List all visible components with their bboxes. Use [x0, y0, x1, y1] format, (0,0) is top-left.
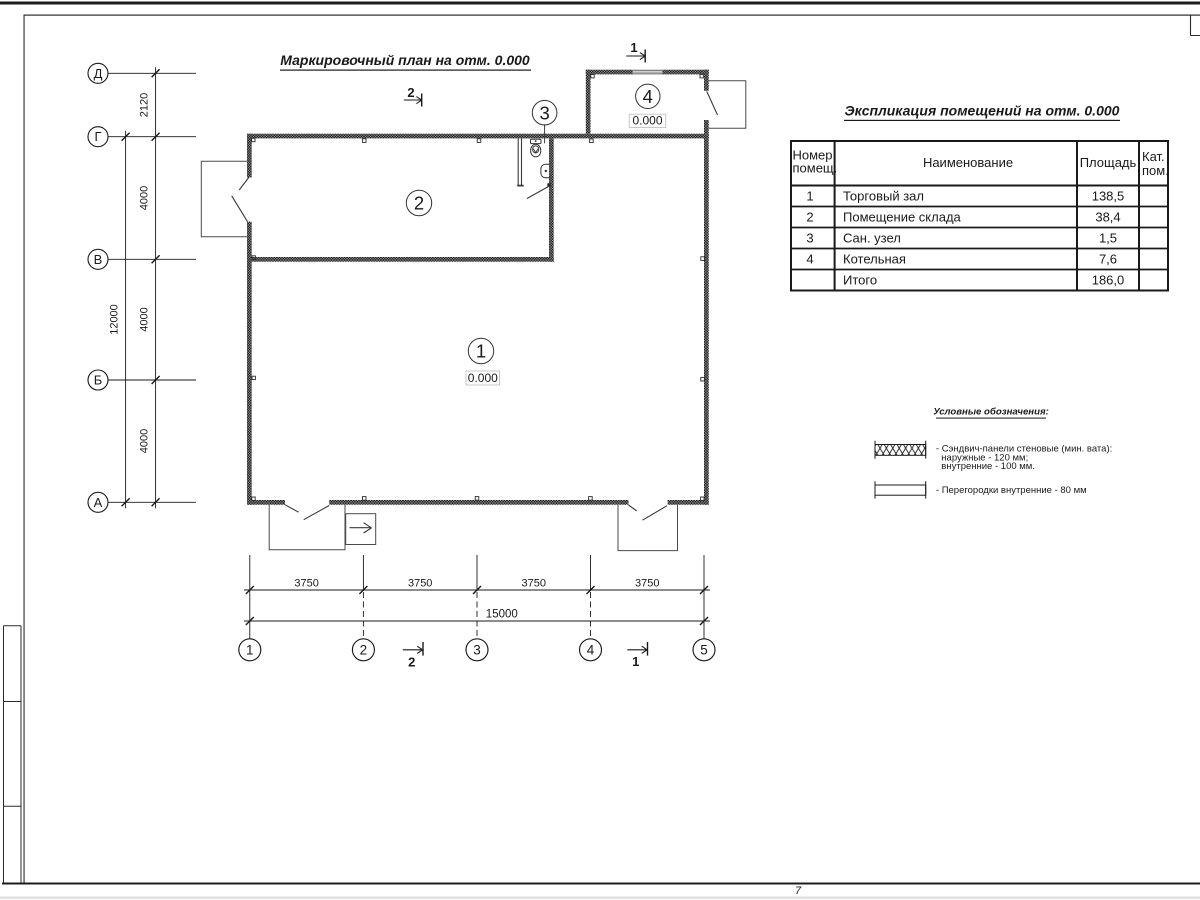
svg-text:пом.: пом.	[1142, 163, 1169, 178]
svg-text:3: 3	[539, 102, 549, 123]
svg-text:2: 2	[407, 85, 414, 100]
svg-text:Наименование: Наименование	[923, 155, 1013, 170]
svg-text:Маркировочный план на отм. 0.0: Маркировочный план на отм. 0.000	[280, 52, 530, 68]
svg-text:Итого: Итого	[843, 273, 877, 288]
svg-text:А: А	[94, 495, 103, 510]
svg-text:Сан. узел: Сан. узел	[843, 231, 901, 246]
svg-text:- Перегородки внутренние - 80: - Перегородки внутренние - 80 мм	[936, 485, 1087, 496]
svg-text:2: 2	[806, 210, 813, 225]
svg-text:Экспликация помещений на отм.: Экспликация помещений на отм. 0.000	[845, 103, 1120, 119]
svg-text:0.000: 0.000	[632, 114, 662, 128]
svg-text:3750: 3750	[408, 578, 432, 590]
svg-text:38,4: 38,4	[1095, 210, 1120, 225]
svg-text:4000: 4000	[139, 429, 151, 453]
svg-text:15000: 15000	[486, 609, 518, 621]
svg-text:7,6: 7,6	[1099, 252, 1117, 267]
svg-text:1: 1	[806, 189, 813, 204]
svg-text:4: 4	[587, 643, 595, 658]
svg-text:2120: 2120	[139, 93, 151, 117]
svg-text:4: 4	[806, 252, 813, 267]
svg-text:Д: Д	[94, 66, 103, 81]
svg-text:0.000: 0.000	[468, 371, 498, 385]
svg-text:2: 2	[360, 643, 368, 658]
svg-text:Торговый зал: Торговый зал	[843, 189, 924, 204]
svg-text:5: 5	[700, 643, 708, 658]
svg-text:Б: Б	[94, 373, 103, 388]
svg-text:1,5: 1,5	[1099, 231, 1117, 246]
svg-text:1: 1	[246, 643, 254, 658]
svg-text:1: 1	[476, 341, 486, 362]
svg-text:Котельная: Котельная	[843, 252, 906, 267]
svg-text:4: 4	[643, 86, 653, 107]
svg-text:7: 7	[795, 885, 802, 897]
svg-text:Площадь: Площадь	[1080, 155, 1137, 170]
svg-text:3750: 3750	[635, 578, 659, 590]
svg-text:12000: 12000	[109, 304, 121, 335]
svg-text:Помещение склада: Помещение склада	[843, 210, 962, 225]
svg-text:Кат.: Кат.	[1142, 149, 1165, 164]
svg-text:1: 1	[632, 654, 639, 669]
svg-text:2: 2	[408, 655, 415, 670]
svg-text:186,0: 186,0	[1092, 273, 1125, 288]
svg-text:4000: 4000	[139, 307, 151, 331]
svg-text:3750: 3750	[522, 578, 546, 590]
svg-text:3750: 3750	[294, 578, 318, 590]
svg-text:4000: 4000	[139, 186, 151, 210]
svg-text:2: 2	[414, 193, 424, 214]
svg-text:помещ.: помещ.	[793, 161, 838, 176]
svg-text:3: 3	[806, 231, 813, 246]
svg-text:3: 3	[473, 643, 481, 658]
svg-text:внутренние - 100 мм.: внутренние - 100 мм.	[941, 461, 1035, 472]
svg-text:Условные обозначения:: Условные обозначения:	[933, 407, 1049, 418]
svg-text:Г: Г	[94, 129, 101, 144]
svg-text:138,5: 138,5	[1092, 189, 1125, 204]
svg-text:1: 1	[630, 40, 637, 55]
svg-text:В: В	[94, 252, 103, 267]
